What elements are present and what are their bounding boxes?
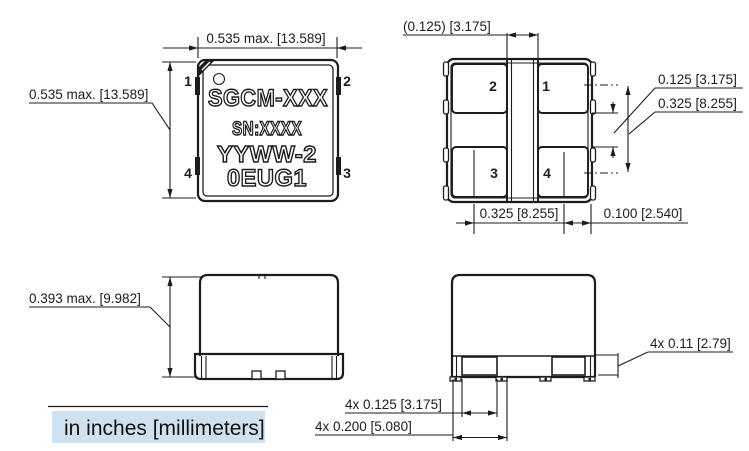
units-note-label: in inches [millimeters] [64,417,265,440]
dim-left-height: 0.535 max. [13.589] [29,62,196,198]
pin-number-3: 3 [343,165,351,181]
castellation-tab [195,77,200,95]
marking-line-4: 0EUG1 [227,165,307,192]
package-drawing: SGCM-XXX SN:XXXX YYWW-2 0EUG1 1 2 4 3 0.… [0,0,749,451]
side-view-left: 0.393 max. [9.982] [29,275,343,379]
dim-side-height-label: 0.393 max. [9.982] [29,291,141,306]
pad-front-left [462,357,497,375]
foot-tick [589,378,592,381]
bottom-notch [252,371,261,379]
castellation-tab [336,157,341,175]
foot-tick [455,378,458,381]
pad-number-4: 4 [543,165,551,181]
marking-line-2: SN:XXXX [232,118,302,140]
side-view-right: 4x 0.11 [2.79] 4x 0.125 [3.175] 4x 0.200… [315,275,733,441]
pad-number-1: 1 [542,78,550,94]
units-note: in inches [millimeters] [48,407,268,444]
dim-pad-span-v-label: 0.325 [8.255] [658,96,737,111]
marking-line-3: YYWW-2 [217,141,317,167]
pin-number-1: 1 [184,73,192,89]
dim-bottom: 0.325 [8.255] 0.100 [2.540] [456,204,688,234]
castellation-tab [591,100,596,114]
pad-number-3: 3 [490,165,498,181]
castellation-tab [591,186,596,200]
dim-left-height-label: 0.535 max. [13.589] [29,87,148,102]
castellation-tab [336,77,341,95]
dim-pad-pitch-label: 4x 0.200 [5.080] [315,419,412,434]
dim-center-gap: (0.125) [3.175] [403,19,538,58]
pin-number-4: 4 [184,165,192,181]
dim-top-width: 0.535 max. [13.589] [163,31,362,58]
base-flange [195,354,343,379]
dim-right-side: 0.125 [3.175] 0.325 [8.255] [584,72,743,173]
dim-pad-gap-label: 0.125 [3.175] [658,72,737,87]
center-strip-inner [512,59,534,202]
dim-pad-width-label: 4x 0.125 [3.175] [345,397,442,412]
pin-number-2: 2 [343,73,351,89]
top-view: SGCM-XXX SN:XXXX YYWW-2 0EUG1 1 2 4 3 0.… [29,31,362,201]
castellation-tab [591,148,596,162]
bottom-notch [276,371,285,379]
castellation-tab [591,62,596,76]
marking-line-1: SGCM-XXX [208,85,328,112]
dim-edge-label: 0.100 [2.540] [604,206,683,221]
foot-tick [501,378,504,381]
pad-front-right [552,357,585,375]
dim-pad-height-label: 4x 0.11 [2.79] [650,336,731,351]
dim-side-height: 0.393 max. [9.982] [29,277,201,377]
foot-tick [545,378,548,381]
package-outline [447,59,592,202]
bottom-view: 2 1 3 4 (0.125) [3.175] 0.125 [3.175] 0.… [403,19,743,234]
castellation-tab [444,148,449,162]
castellation-tab [195,157,200,175]
pad-2 [452,64,507,113]
body-outline [452,275,595,377]
dim-top-width-label: 0.535 max. [13.589] [206,31,325,46]
castellation-columns [457,356,591,377]
package-inner-outline [451,63,588,198]
dim-center-gap-label: (0.125) [3.175] [403,19,491,34]
castellation-tab [444,100,449,114]
dim-pad-width: 4x 0.125 [3.175] [345,379,497,417]
body-outline [200,275,338,356]
package-drawing-page: SGCM-XXX SN:XXXX YYWW-2 0EUG1 1 2 4 3 0.… [0,0,749,451]
pad-3 [452,147,507,197]
castellation-columns [202,356,337,378]
pin1-marker-icon [214,74,225,85]
pad-number-2: 2 [489,78,497,94]
castellation-tab [444,62,449,76]
dim-pad-height: 4x 0.11 [2.79] [596,336,733,378]
dim-pad-span-h-label: 0.325 [8.255] [480,206,559,221]
castellation-tab [444,186,449,200]
